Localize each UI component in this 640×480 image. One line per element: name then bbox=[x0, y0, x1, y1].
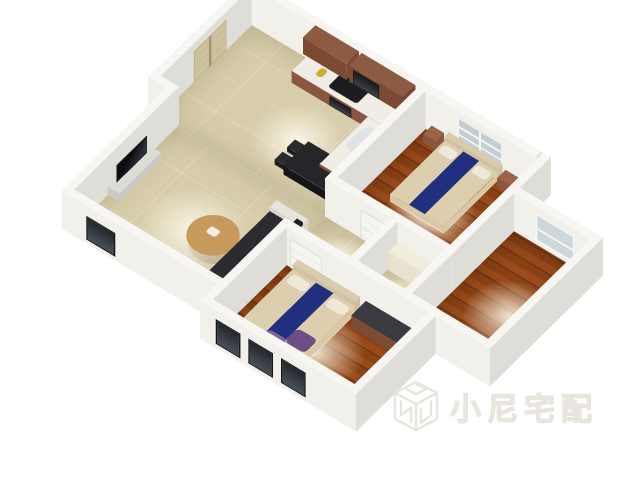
cube-logo-icon bbox=[392, 380, 440, 432]
watermark: 小尼宅配 bbox=[392, 380, 598, 432]
left-step-wall-east bbox=[173, 87, 179, 130]
living-left-wall-south bbox=[61, 191, 68, 233]
bedroom3-bottom-wall-east bbox=[356, 388, 362, 431]
watermark-text: 小尼宅配 bbox=[450, 384, 598, 429]
bedroom3-left-wall-south bbox=[200, 301, 207, 343]
floorplan-render-stage: 小尼宅配 bbox=[0, 0, 640, 480]
